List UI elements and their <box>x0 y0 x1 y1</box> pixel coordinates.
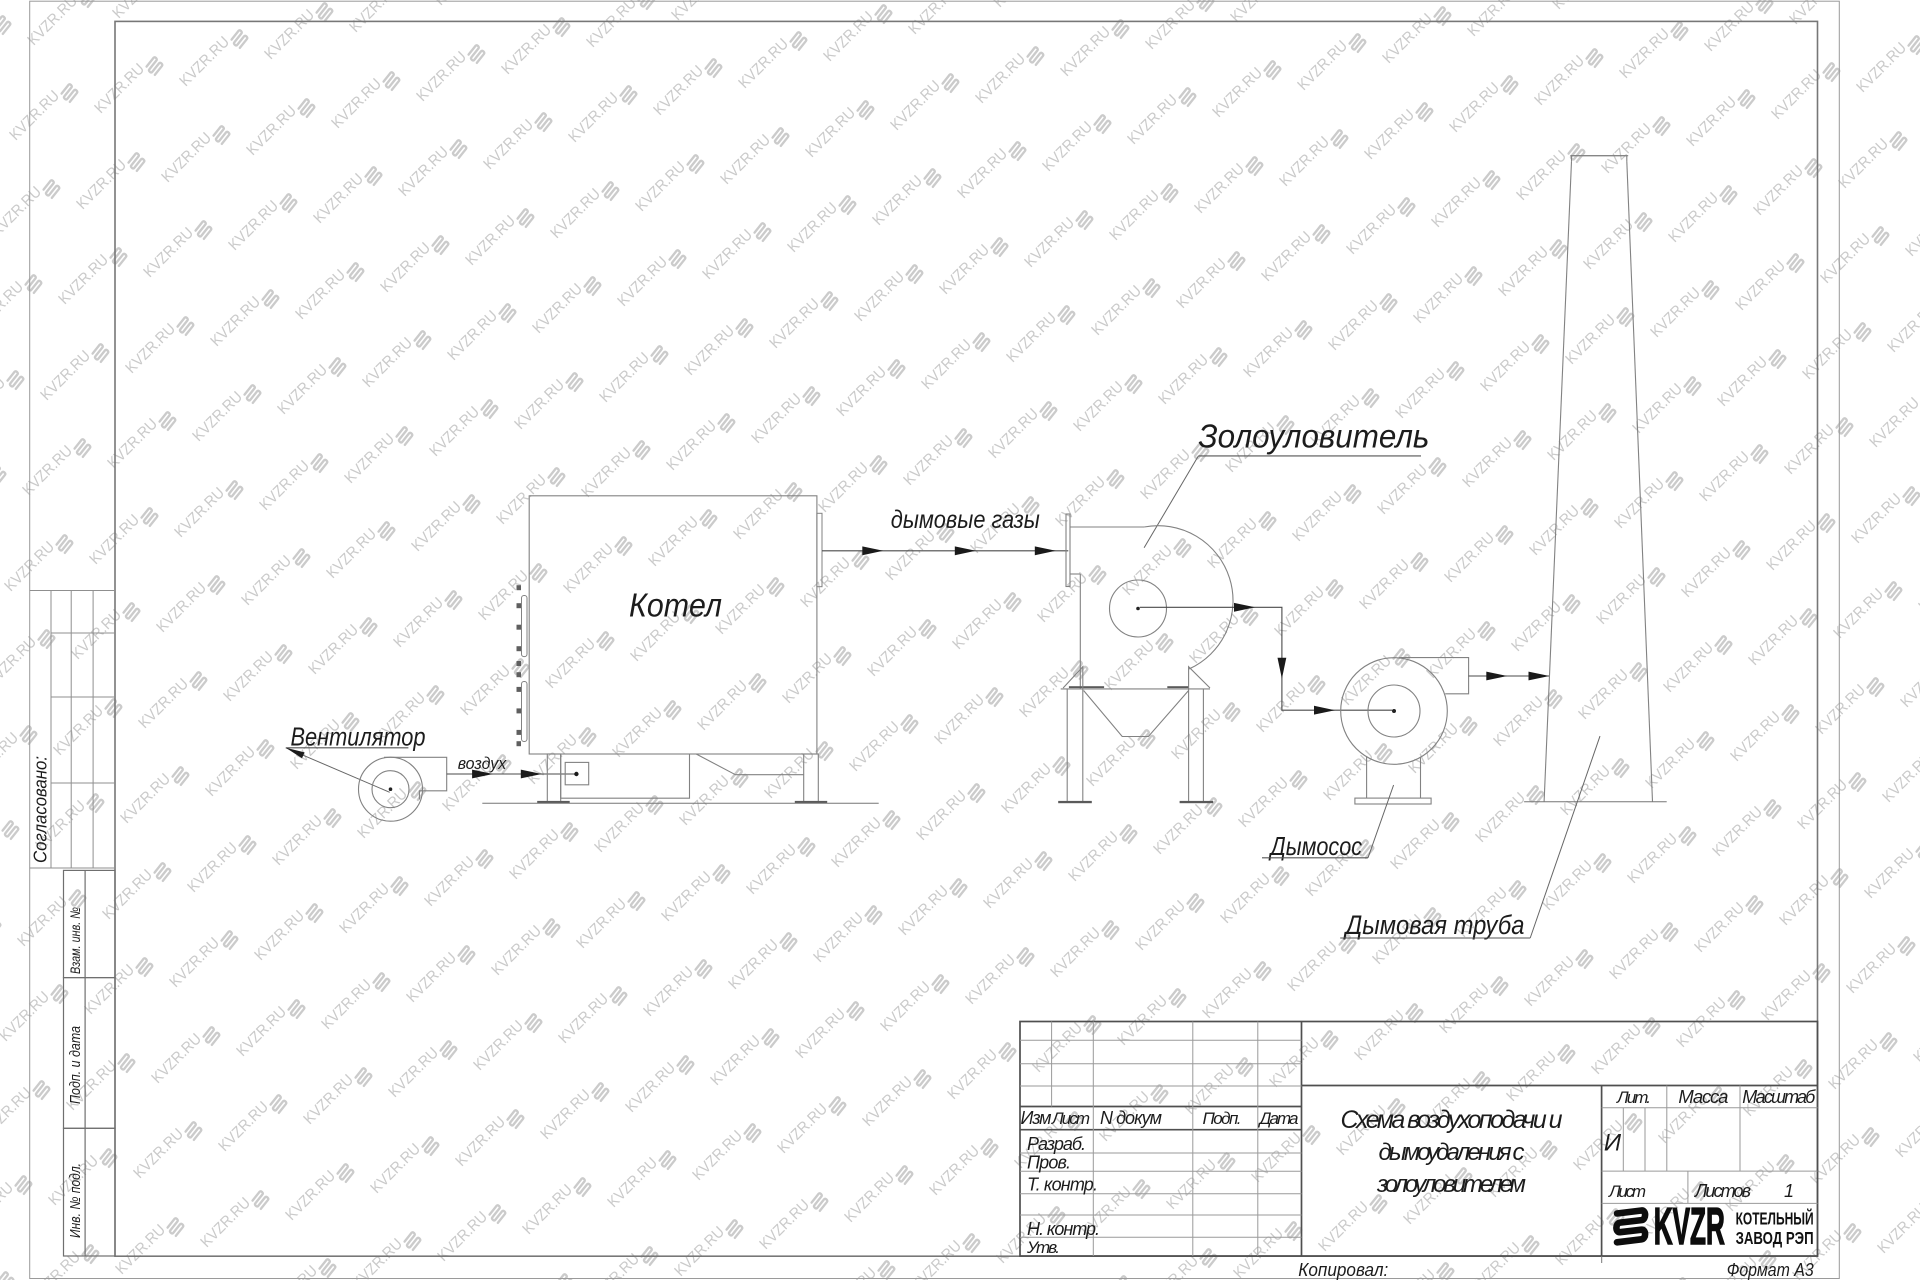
svg-text:Т. контр.: Т. контр. <box>1027 1175 1098 1195</box>
svg-text:1: 1 <box>1784 1181 1794 1201</box>
svg-text:Пров.: Пров. <box>1027 1153 1071 1173</box>
svg-text:Копировал:: Копировал: <box>1298 1259 1388 1280</box>
svg-text:Дата: Дата <box>1258 1109 1299 1128</box>
svg-text:дымоудаления с: дымоудаления с <box>1379 1139 1525 1166</box>
svg-text:дымовые газы: дымовые газы <box>891 506 1040 534</box>
svg-text:N докум: N докум <box>1100 1108 1162 1128</box>
svg-text:воздух: воздух <box>458 754 507 773</box>
svg-text:Золоуловитель: Золоуловитель <box>1198 418 1429 455</box>
svg-text:Лист: Лист <box>1051 1109 1090 1128</box>
svg-text:Масса: Масса <box>1678 1086 1728 1107</box>
svg-text:KVZR: KVZR <box>1654 1198 1725 1256</box>
svg-text:золоуловителем: золоуловителем <box>1376 1171 1526 1198</box>
svg-text:И: И <box>1604 1130 1622 1157</box>
svg-text:Взам. инв. №: Взам. инв. № <box>67 907 83 974</box>
svg-text:Формат А3: Формат А3 <box>1727 1260 1814 1280</box>
svg-text:Утв.: Утв. <box>1026 1238 1060 1257</box>
svg-text:Котел: Котел <box>629 586 722 623</box>
svg-text:Дымовая труба: Дымовая труба <box>1343 910 1525 940</box>
svg-text:Н. контр.: Н. контр. <box>1027 1219 1100 1239</box>
svg-text:Схема воздухоподачи и: Схема воздухоподачи и <box>1341 1106 1563 1134</box>
svg-text:Лит.: Лит. <box>1616 1088 1651 1107</box>
svg-text:ЗАВОД РЭП: ЗАВОД РЭП <box>1736 1228 1814 1248</box>
svg-text:Вентилятор: Вентилятор <box>291 722 426 752</box>
svg-text:Подп. и дата: Подп. и дата <box>68 1026 84 1104</box>
svg-text:КОТЕЛЬНЫЙ: КОТЕЛЬНЫЙ <box>1736 1207 1814 1228</box>
svg-text:Подп.: Подп. <box>1203 1109 1242 1128</box>
svg-text:Масштаб: Масштаб <box>1742 1087 1816 1107</box>
svg-text:Изм: Изм <box>1021 1108 1052 1128</box>
svg-text:Инв. № подл.: Инв. № подл. <box>68 1163 84 1238</box>
svg-text:Согласовано:: Согласовано: <box>31 756 51 863</box>
svg-text:Разраб.: Разраб. <box>1027 1134 1086 1154</box>
svg-text:Лист: Лист <box>1608 1182 1646 1201</box>
svg-text:Дымосос: Дымосос <box>1268 831 1362 861</box>
